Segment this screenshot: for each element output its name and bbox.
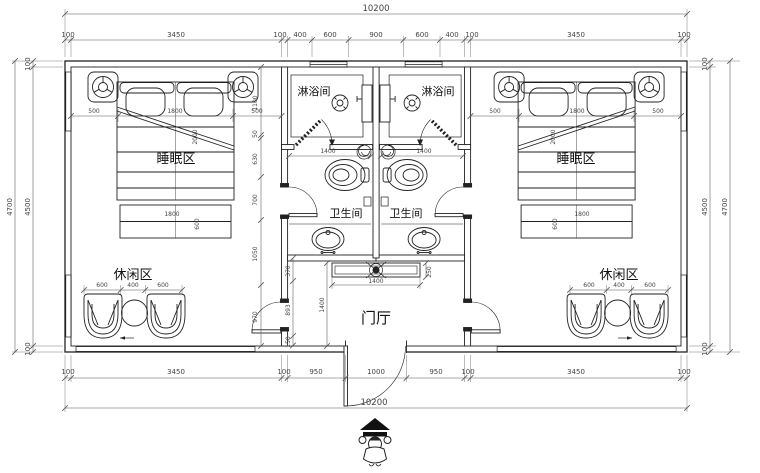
dim-label: 1800 [164, 211, 179, 218]
dim-label: 1400 [320, 148, 335, 155]
dim-label: 4700 [721, 198, 729, 216]
dim-label: 500 [88, 108, 100, 115]
dim-label: 600 [96, 282, 108, 289]
dim-label: 100 [465, 31, 478, 39]
center-wall [362, 67, 390, 258]
dim-label: 1050 [252, 246, 259, 261]
dim-label: 3450 [167, 31, 185, 39]
room-label-hall: 门厅 [361, 309, 391, 327]
room-label-shower-left: 淋浴间 [298, 85, 331, 98]
dim-label: 10200 [360, 398, 387, 408]
pipe-shaft [380, 85, 390, 122]
dim-label: 1400 [368, 278, 383, 285]
room-label-leisure-right: 休闲区 [599, 268, 638, 283]
dim-label: 2000 [192, 129, 199, 144]
ceiling-fan-icon [366, 262, 386, 278]
dim-label: 1400 [416, 148, 431, 155]
dim-label: 100 [677, 368, 690, 376]
dim-label: 370 [285, 265, 292, 277]
dim-label: 1000 [367, 368, 385, 376]
room-label-leisure-left: 休闲区 [113, 268, 152, 283]
room-label-toilet-left: 卫生间 [330, 206, 363, 220]
entry-arrow-icon [360, 418, 390, 437]
dim-label: 950 [429, 368, 442, 376]
room-label-shower-right: 淋浴间 [422, 85, 455, 98]
dim-label: 100 [61, 368, 74, 376]
dim-label: 500 [652, 108, 664, 115]
dim-label: 400 [445, 31, 458, 39]
person-icon [359, 437, 391, 467]
dim-label: 4500 [24, 198, 32, 216]
dim-label: 600 [552, 218, 559, 230]
room-label-sleep-left: 睡眠区 [156, 152, 195, 167]
dim-label: 893 [285, 304, 292, 316]
hall-cabinet [332, 262, 420, 278]
dim-label: 700 [252, 194, 259, 206]
dim-label: 10200 [362, 4, 389, 14]
pipe-shaft [362, 85, 372, 122]
dim-label: 100 [461, 368, 474, 376]
dim-label: 400 [127, 282, 139, 289]
dim-label: 600 [583, 282, 595, 289]
dim-label: 500 [489, 108, 501, 115]
dim-label: 1800 [569, 108, 584, 115]
dim-label: 1400 [319, 297, 326, 312]
dim-label: 3450 [167, 368, 185, 376]
dim-label: 2000 [550, 129, 557, 144]
dim-label: 3450 [567, 368, 585, 376]
dim-label: 600 [194, 218, 201, 230]
dim-label: 400 [293, 31, 306, 39]
dim-label: 970 [252, 311, 259, 323]
dim-label: 400 [613, 282, 625, 289]
room-label-toilet-right: 卫生间 [390, 206, 423, 220]
floor-plan-drawing: 10200 10200 100 3450 100 400 600 900 600… [0, 0, 760, 473]
dim-label: 4700 [6, 198, 14, 216]
dim-label: 1800 [167, 108, 182, 115]
dim-label: 100 [273, 31, 286, 39]
dim-label: 630 [252, 153, 259, 165]
dim-label: 50 [252, 130, 259, 138]
dim-label: 600 [644, 282, 656, 289]
room-label-sleep-right: 睡眠区 [556, 152, 595, 167]
dim-label: 900 [369, 31, 382, 39]
dim-label: 1800 [574, 211, 589, 218]
dim-label: 600 [323, 31, 336, 39]
dim-label: 4500 [701, 198, 709, 216]
dim-label: 950 [309, 368, 322, 376]
dim-label: 100 [277, 368, 290, 376]
dim-label: 600 [415, 31, 428, 39]
dim-label: 3450 [567, 31, 585, 39]
dim-label: 600 [157, 282, 169, 289]
dim-label: 1100 [252, 95, 259, 110]
floor-plan-canvas: 10200 10200 100 3450 100 400 600 900 600… [0, 0, 760, 473]
